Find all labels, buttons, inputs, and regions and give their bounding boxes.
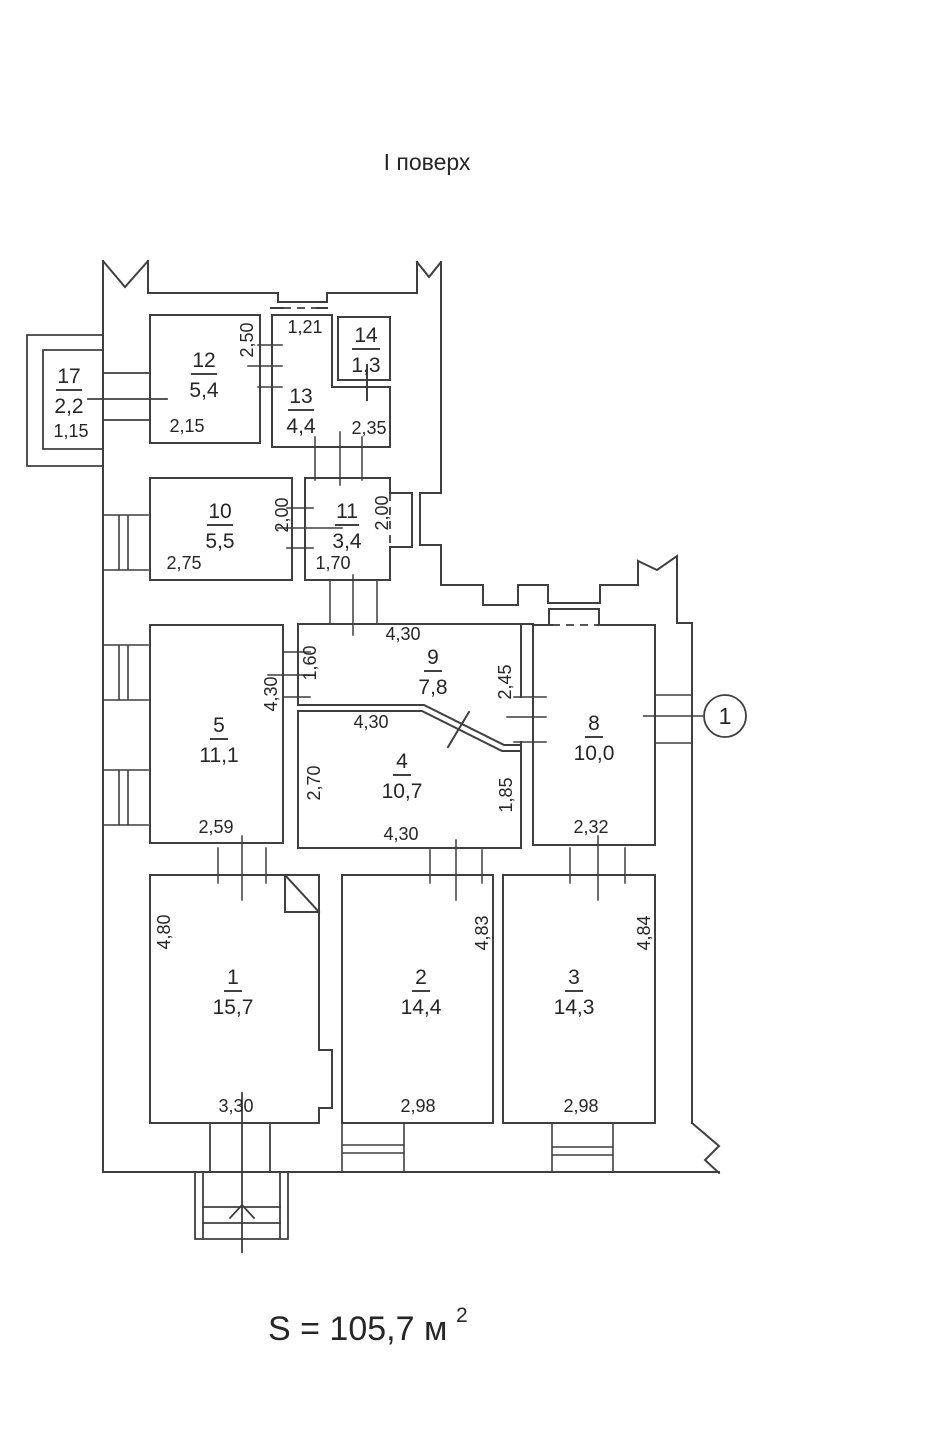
- wall-stepped-right: [420, 493, 638, 605]
- dim-room10-width: 2,75: [166, 553, 201, 573]
- room-1-area: 15,7: [213, 996, 254, 1019]
- window-left-room10: [103, 515, 148, 570]
- room-2-number: 2: [415, 966, 427, 989]
- dim-room4-top: 4,30: [353, 712, 388, 732]
- room-11-niche: [390, 493, 412, 547]
- floor-plan-page: 1 1 15,7 2 14,4 3 14,3 4 10,7 5 11,1 8 1…: [0, 0, 926, 1440]
- window-right-room8: [655, 695, 692, 743]
- room-labels: 1 15,7 2 14,4 3 14,3 4 10,7 5 11,1 8 10,…: [54, 324, 614, 1019]
- door-9-8: [507, 697, 546, 742]
- dim-room9-right: 2,45: [495, 664, 515, 699]
- floor-plan-svg: 1 1 15,7 2 14,4 3 14,3 4 10,7 5 11,1 8 1…: [0, 0, 926, 1440]
- wall-break-bottom-right: [692, 1123, 719, 1173]
- room-14-area: 1,3: [351, 354, 380, 377]
- window-bottom-room2: [342, 1123, 404, 1172]
- window-left-room5-lower: [103, 770, 148, 825]
- balcony-17: [27, 335, 167, 466]
- door-ticks: [218, 345, 625, 900]
- room-8-box: [533, 625, 655, 845]
- room-11-area: 3,4: [332, 530, 362, 553]
- room-9-area: 7,8: [418, 676, 447, 699]
- entry-door-jambs: [210, 1125, 270, 1172]
- dim-room17-width: 1,15: [53, 421, 88, 441]
- door-5-1: [218, 836, 266, 900]
- wall-break-top-right: [417, 262, 441, 493]
- dim-room12-width: 2,15: [169, 416, 204, 436]
- room-8-area: 10,0: [574, 742, 615, 765]
- wall-top: [148, 293, 417, 302]
- dim-room2-depth: 4,83: [472, 915, 492, 950]
- room-2-area: 14,4: [401, 996, 442, 1019]
- dim-room4-left: 2,70: [304, 765, 324, 800]
- window-left-room5-upper: [103, 645, 148, 700]
- room-14-number: 14: [354, 324, 378, 347]
- entry-marker-number: 1: [719, 703, 732, 729]
- dim-room12-depth: 2,50: [237, 322, 257, 357]
- room-3-area: 14,3: [554, 996, 595, 1019]
- total-area-text: S = 105,7 м: [268, 1310, 447, 1348]
- dim-room9-left: 1,60: [300, 645, 320, 680]
- room-13-area: 4,4: [286, 415, 316, 438]
- dim-room1-depth: 4,80: [154, 914, 174, 949]
- dim-room11-width: 1,70: [315, 553, 350, 573]
- dim-room13-entry: 1,21: [287, 317, 322, 337]
- room-5-number: 5: [213, 714, 225, 737]
- room-9-number: 9: [427, 646, 439, 669]
- room-10-area: 5,5: [205, 530, 234, 553]
- dim-room13-width: 2,35: [351, 418, 386, 438]
- room-5-area: 11,1: [199, 744, 238, 767]
- room-12-number: 12: [192, 349, 215, 372]
- dim-room4-bottom: 4,30: [383, 824, 418, 844]
- total-area-exponent: 2: [456, 1304, 468, 1327]
- door-11-9: [330, 575, 377, 635]
- wall-break-top-left: [103, 261, 148, 293]
- room-4-number: 4: [396, 750, 408, 773]
- room-11-number: 11: [336, 500, 358, 523]
- dim-room4-right: 1,85: [496, 777, 516, 812]
- dim-room1-width: 3,30: [218, 1096, 253, 1116]
- dim-room8-width: 2,32: [573, 817, 608, 837]
- room-4-area: 10,7: [382, 780, 423, 803]
- room-10-number: 10: [208, 500, 231, 523]
- room-17-number: 17: [57, 365, 80, 388]
- room-13-number: 13: [289, 385, 312, 408]
- room-12-area: 5,4: [189, 379, 219, 402]
- balcony-door-lines: [103, 373, 148, 420]
- page-title: І поверх: [384, 149, 471, 175]
- dim-room3-width: 2,98: [563, 1096, 598, 1116]
- dim-room5-width: 2,59: [198, 817, 233, 837]
- room-9-4-divider: [298, 705, 521, 751]
- dim-room2-width: 2,98: [400, 1096, 435, 1116]
- room-8-number: 8: [588, 712, 600, 735]
- room-1-number: 1: [227, 966, 239, 989]
- dim-room3-depth: 4,84: [634, 915, 654, 950]
- dim-room10-depth: 2,00: [272, 497, 292, 532]
- wall-break-mid-right: [638, 556, 692, 623]
- dim-room11-depth: 2,00: [372, 495, 392, 530]
- dim-room9-width: 4,30: [385, 624, 420, 644]
- stove-symbol: [285, 875, 319, 912]
- dim-room5-depth: 4,30: [261, 676, 281, 711]
- room-3-number: 3: [568, 966, 580, 989]
- room-17-area: 2,2: [54, 395, 83, 418]
- room-8-landing: [549, 609, 599, 625]
- window-bottom-room3: [552, 1123, 613, 1172]
